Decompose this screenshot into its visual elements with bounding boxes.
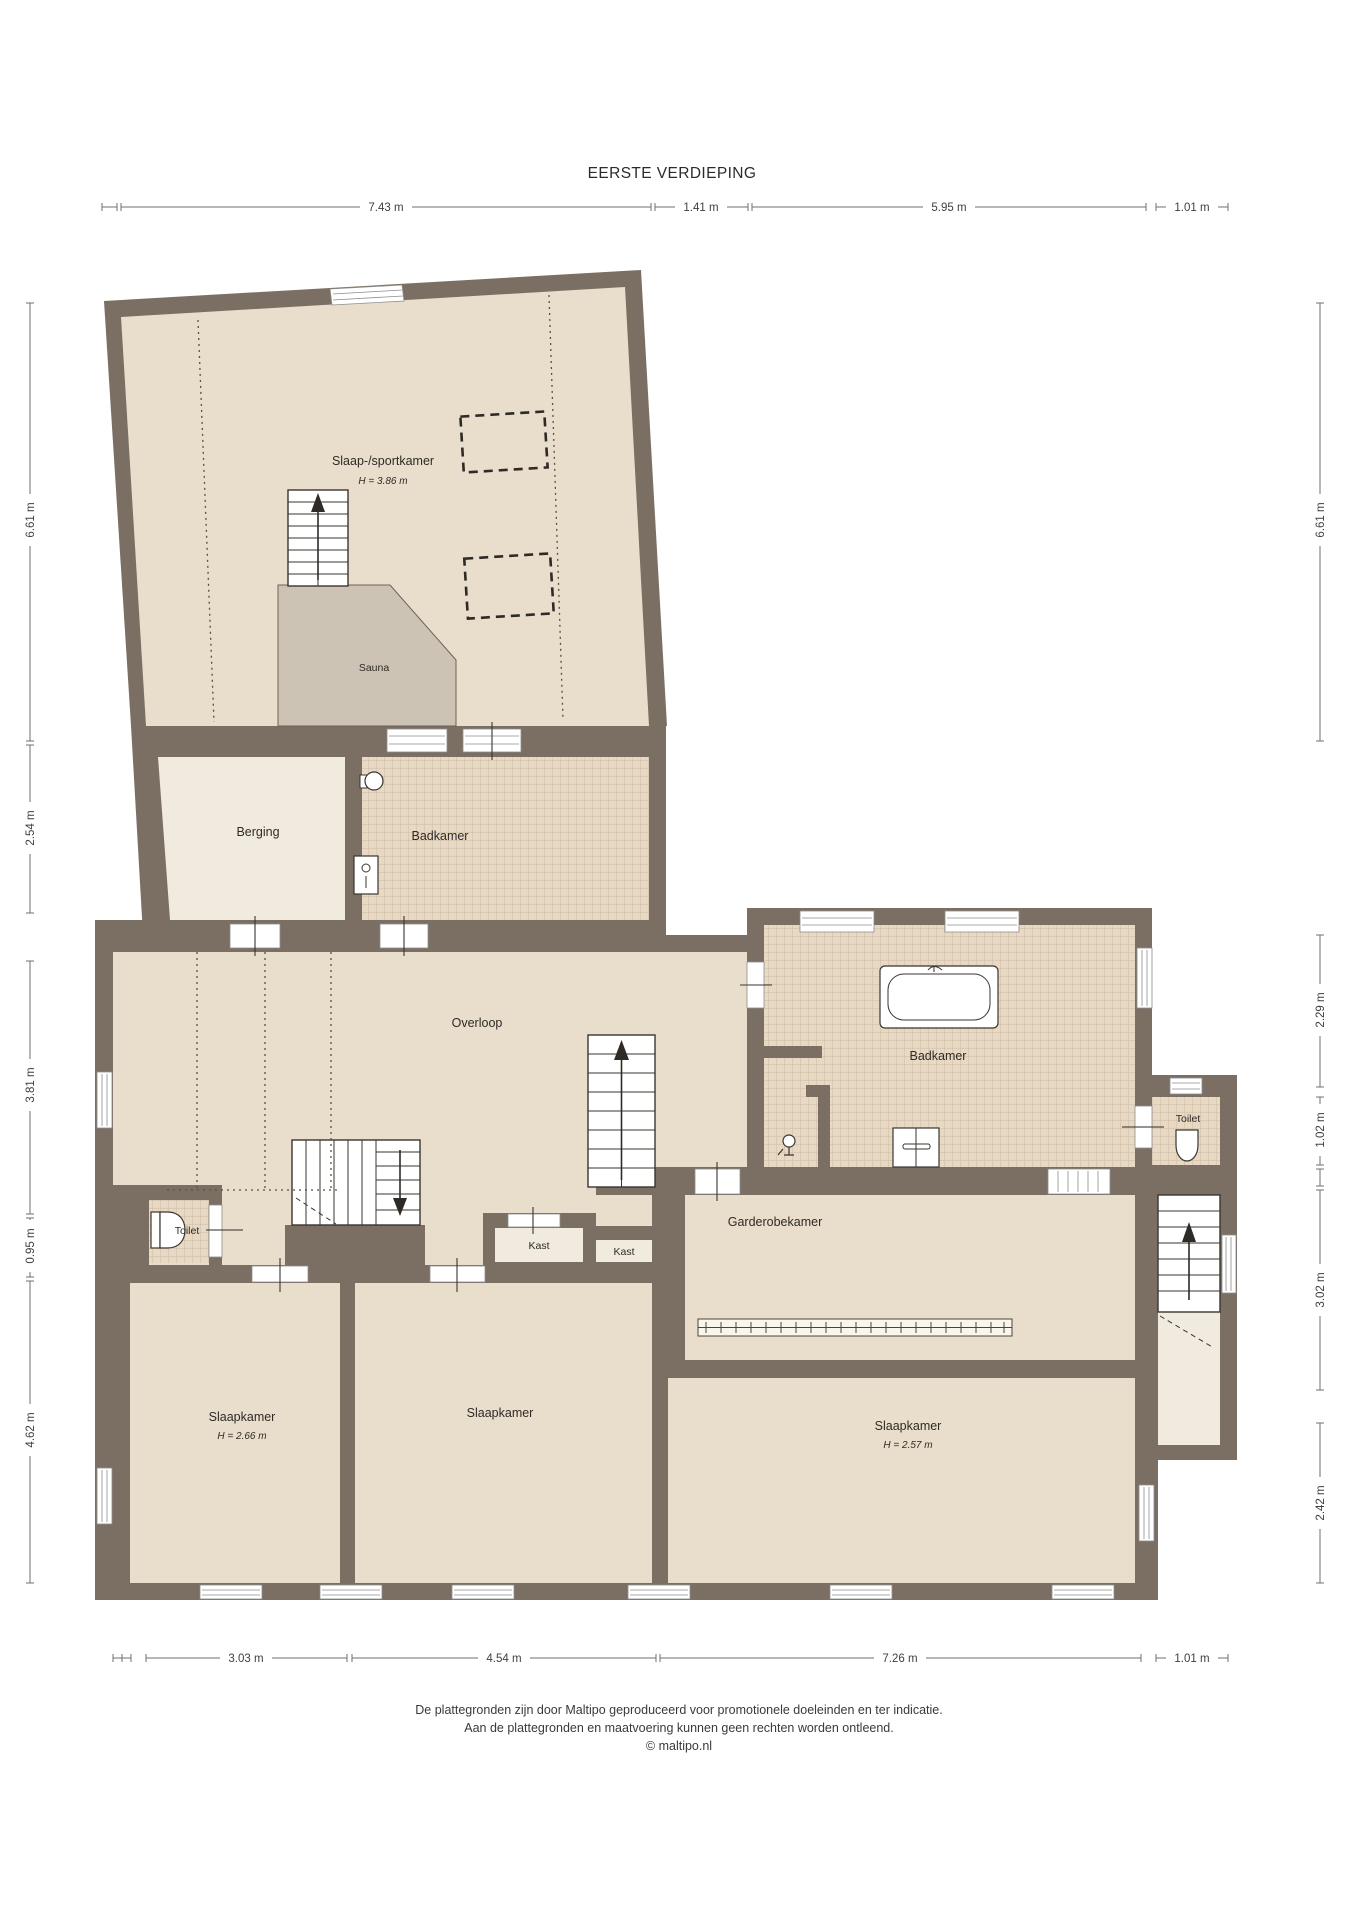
room-label-kast-2: Kast <box>613 1246 634 1258</box>
dim-left-4: 0.95 m <box>25 1228 37 1263</box>
dim-top-1: 7.43 m <box>368 202 403 214</box>
footer-line-3: © maltipo.nl <box>646 1739 712 1753</box>
dim-right-2: 2.29 m <box>1315 992 1327 1027</box>
window-bottom-6 <box>1052 1585 1114 1599</box>
room-label-slaapkamer-rechts: Slaapkamer <box>875 1419 942 1433</box>
room-stair-landing-floor <box>1158 1312 1220 1445</box>
dim-bottom-1: 3.03 m <box>228 1653 263 1665</box>
dim-left-5: 4.62 m <box>25 1412 37 1447</box>
window-bottom-1 <box>200 1585 262 1599</box>
window-top-block <box>330 285 404 305</box>
dim-right-1: 6.61 m <box>1315 502 1327 537</box>
dim-left-3: 3.81 m <box>25 1067 37 1102</box>
dim-top-4: 1.01 m <box>1174 202 1209 214</box>
room-label-toilet-links: Toilet <box>175 1225 200 1237</box>
room-label-slaapkamer-midden: Slaapkamer <box>467 1406 534 1420</box>
room-label-berging: Berging <box>236 825 279 839</box>
round-sink <box>360 772 383 790</box>
dim-right-3: 1.02 m <box>1315 1112 1327 1147</box>
footer-line-2: Aan de plattegronden en maatvoering kunn… <box>464 1721 894 1735</box>
window-toilet-rechts <box>1170 1078 1202 1094</box>
dim-top-2: 1.41 m <box>683 202 718 214</box>
window-left-2 <box>97 1468 112 1524</box>
stair-top-block <box>288 490 348 586</box>
window-badkamer-top-1 <box>800 911 874 932</box>
window-garderobe-glass <box>1048 1169 1110 1194</box>
dim-bottom-2: 4.54 m <box>486 1653 521 1665</box>
dim-left-1: 6.61 m <box>25 502 37 537</box>
room-slaapkamer-rechts-floor <box>668 1378 1135 1583</box>
room-label-overloop: Overloop <box>452 1016 503 1030</box>
dim-right-5: 2.42 m <box>1315 1485 1327 1520</box>
room-label-badkamer-boven: Badkamer <box>412 829 469 843</box>
room-label-toilet-rechts: Toilet <box>1176 1113 1201 1125</box>
dim-left-2: 2.54 m <box>25 810 37 845</box>
washbasin <box>354 856 378 894</box>
door-toilet-links <box>209 1205 222 1257</box>
room-height-sport: H = 3.86 m <box>358 476 407 487</box>
stair-up-main <box>588 1035 655 1187</box>
room-slaapkamer-midden-floor <box>355 1283 652 1583</box>
page-title: EERSTE VERDIEPING <box>588 165 757 182</box>
room-label-slaapkamer-links: Slaapkamer <box>209 1410 276 1424</box>
window-left-1 <box>97 1072 112 1128</box>
window-bottom-4 <box>628 1585 690 1599</box>
toilet-rechts-fixture <box>1176 1130 1198 1161</box>
room-label-sport: Slaap-/sportkamer <box>332 454 434 468</box>
dim-right-4: 3.02 m <box>1315 1272 1327 1307</box>
window-bottom-2 <box>320 1585 382 1599</box>
floor-plan: Slaap-/sportkamer H = 3.86 m Sauna Bergi… <box>0 0 1358 1920</box>
room-label-kast-1: Kast <box>528 1240 549 1252</box>
window-bottom-3 <box>452 1585 514 1599</box>
stair-down-hall <box>292 1140 420 1225</box>
footer-line-1: De plattegronden zijn door Maltipo gepro… <box>415 1703 942 1717</box>
window-bump-right <box>1222 1235 1236 1293</box>
dim-bottom-3: 7.26 m <box>882 1653 917 1665</box>
room-label-sauna: Sauna <box>359 662 390 674</box>
window-bedroom-right <box>1139 1485 1154 1541</box>
wardrobe-rail <box>698 1319 1012 1336</box>
vanity-sink <box>893 1128 939 1167</box>
room-label-garderobekamer: Garderobekamer <box>728 1215 823 1229</box>
room-label-badkamer: Badkamer <box>910 1049 967 1063</box>
room-height-slaapkamer-links: H = 2.66 m <box>217 1431 266 1442</box>
dim-top-3: 5.95 m <box>931 202 966 214</box>
dim-bottom-4: 1.01 m <box>1174 1653 1209 1665</box>
room-height-slaapkamer-rechts: H = 2.57 m <box>883 1440 932 1451</box>
room-badkamer-boven-floor <box>362 757 649 920</box>
window-badkamer-top-2 <box>945 911 1019 932</box>
window-bottom-5 <box>830 1585 892 1599</box>
bathtub <box>880 966 998 1028</box>
window-strip-1 <box>387 729 447 752</box>
window-badkamer-right <box>1137 948 1152 1008</box>
